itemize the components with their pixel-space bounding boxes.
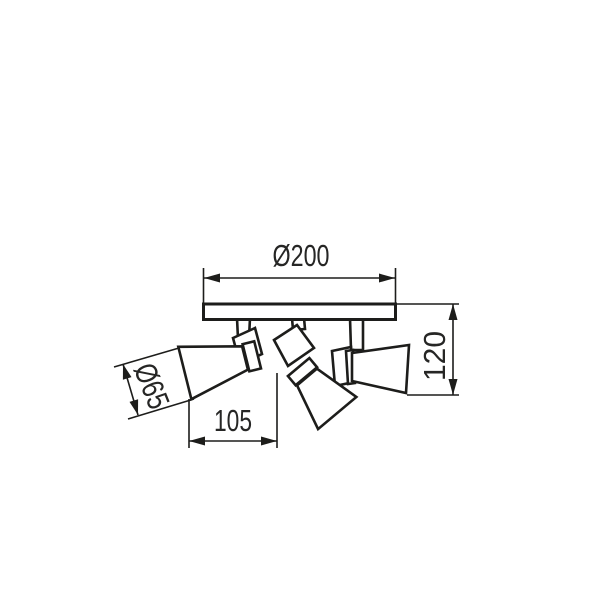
spotlight-left: [178, 328, 264, 399]
spotlight-dimension-drawing: Ø200 120 Ø65 105: [0, 0, 600, 600]
dim-label-plate-diameter: Ø200: [273, 238, 330, 273]
cone-right: [352, 345, 409, 393]
technical-drawing-page: Ø200 120 Ø65 105: [0, 0, 600, 600]
arrowhead-lower: [130, 399, 139, 415]
arrowhead-left: [204, 274, 220, 283]
dim-label-fixture-height: 120: [417, 331, 452, 381]
dimension-plate-diameter: Ø200: [204, 238, 396, 304]
spotlight-right: [332, 345, 409, 393]
arrowhead-right: [261, 437, 277, 446]
stem-right: [350, 318, 363, 350]
arrowhead-left: [189, 437, 205, 446]
arrowhead-up: [449, 304, 458, 320]
ceiling-plate: [204, 304, 396, 320]
dim-label-head-offset: 105: [214, 403, 252, 438]
arrowhead-right: [379, 274, 395, 283]
